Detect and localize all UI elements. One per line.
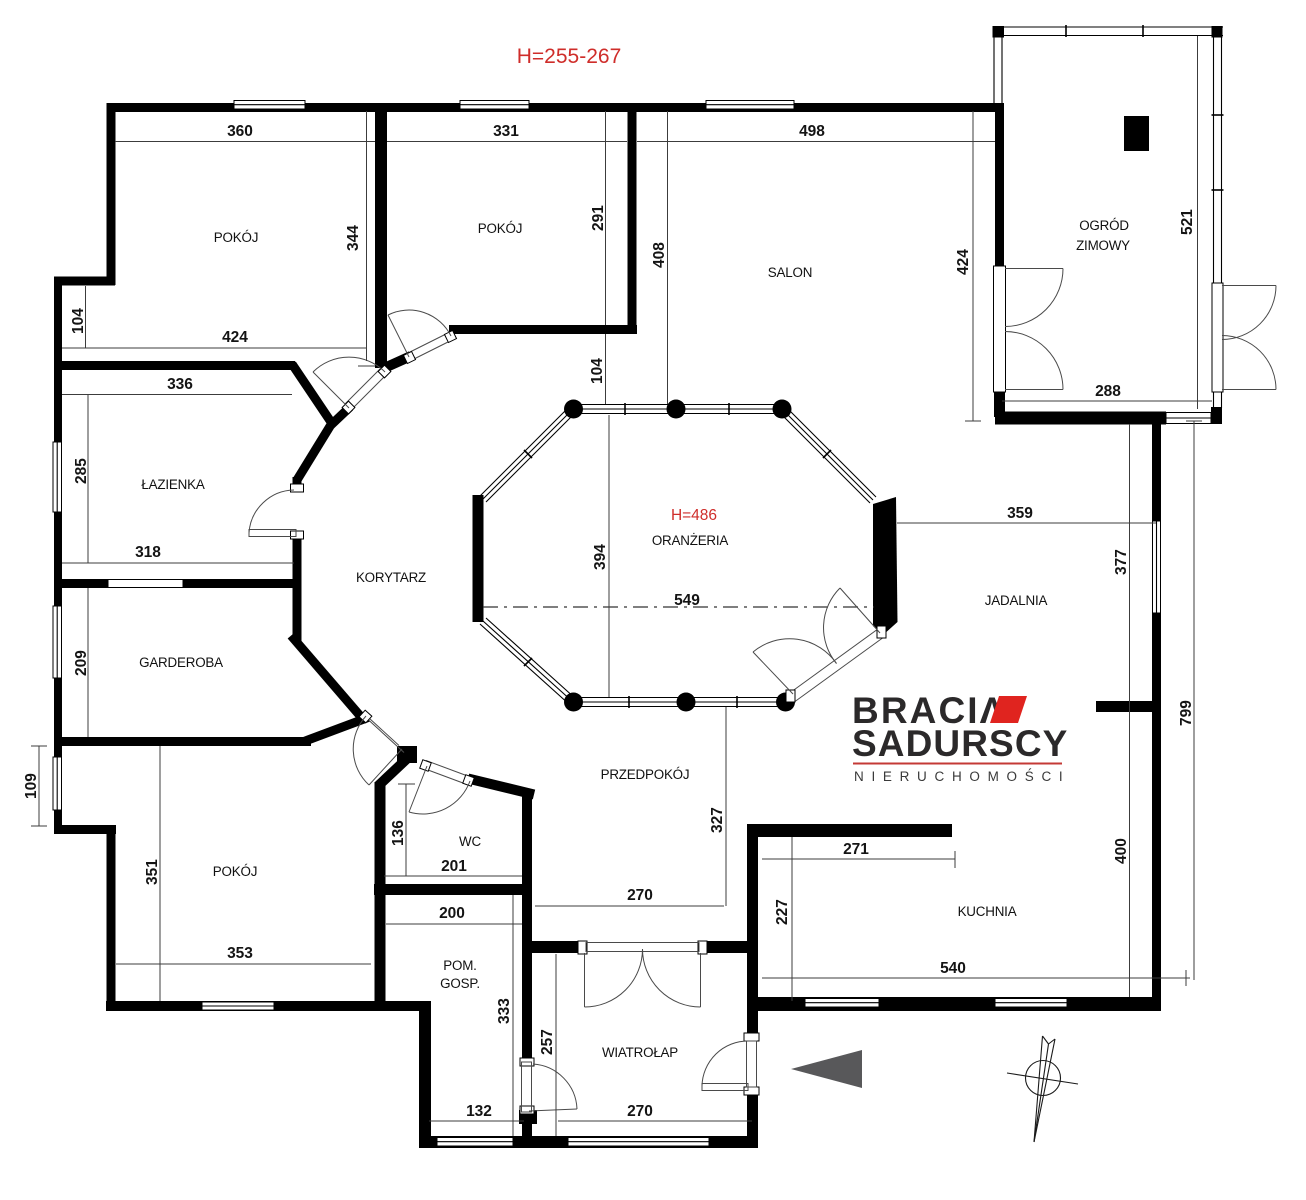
- svg-text:109: 109: [23, 773, 40, 799]
- svg-text:394: 394: [592, 544, 609, 570]
- svg-text:ORANŻERIA: ORANŻERIA: [652, 533, 729, 548]
- svg-text:377: 377: [1113, 549, 1130, 575]
- svg-text:351: 351: [144, 859, 161, 885]
- svg-text:336: 336: [167, 376, 193, 393]
- svg-text:285: 285: [73, 458, 90, 484]
- svg-text:424: 424: [955, 249, 972, 275]
- svg-text:498: 498: [799, 123, 825, 140]
- svg-text:331: 331: [493, 123, 519, 140]
- svg-text:KORYTARZ: KORYTARZ: [356, 570, 426, 585]
- svg-text:521: 521: [1179, 209, 1196, 235]
- svg-text:257: 257: [539, 1029, 556, 1055]
- svg-text:104: 104: [70, 308, 87, 334]
- svg-text:104: 104: [589, 358, 606, 384]
- svg-text:270: 270: [627, 1103, 653, 1120]
- svg-text:360: 360: [227, 123, 253, 140]
- svg-text:POKÓJ: POKÓJ: [478, 221, 522, 236]
- svg-text:353: 353: [227, 945, 253, 962]
- svg-text:227: 227: [774, 899, 791, 925]
- svg-text:270: 270: [627, 887, 653, 904]
- svg-text:SADURSCY: SADURSCY: [852, 723, 1068, 764]
- svg-text:271: 271: [843, 841, 869, 858]
- svg-text:H=255-267: H=255-267: [517, 45, 622, 68]
- svg-text:NIERUCHOMOŚCI: NIERUCHOMOŚCI: [854, 769, 1070, 784]
- svg-text:PRZEDPOKÓJ: PRZEDPOKÓJ: [601, 767, 690, 782]
- svg-text:SALON: SALON: [768, 265, 812, 280]
- svg-text:408: 408: [651, 242, 668, 268]
- svg-text:344: 344: [345, 225, 362, 251]
- svg-text:549: 549: [674, 592, 700, 609]
- svg-text:209: 209: [73, 650, 90, 676]
- svg-text:799: 799: [1178, 700, 1195, 726]
- svg-text:288: 288: [1095, 383, 1121, 400]
- svg-text:318: 318: [135, 544, 161, 561]
- svg-text:H=486: H=486: [671, 507, 717, 524]
- svg-text:333: 333: [496, 998, 513, 1024]
- svg-text:OGRÓD: OGRÓD: [1079, 218, 1129, 233]
- svg-text:POKÓJ: POKÓJ: [213, 864, 257, 879]
- svg-text:GARDEROBA: GARDEROBA: [139, 655, 223, 670]
- svg-text:359: 359: [1007, 505, 1033, 522]
- svg-text:540: 540: [940, 960, 966, 977]
- svg-text:424: 424: [222, 329, 248, 346]
- svg-text:WIATROŁAP: WIATROŁAP: [602, 1045, 678, 1060]
- svg-text:327: 327: [709, 807, 726, 833]
- svg-text:WC: WC: [459, 834, 481, 849]
- svg-text:GOSP.: GOSP.: [440, 976, 480, 991]
- svg-text:400: 400: [1113, 838, 1130, 864]
- svg-text:291: 291: [590, 205, 607, 231]
- svg-text:136: 136: [390, 820, 407, 846]
- svg-text:132: 132: [466, 1103, 492, 1120]
- svg-text:ŁAZIENKA: ŁAZIENKA: [141, 477, 204, 492]
- svg-text:POM.: POM.: [443, 958, 476, 973]
- svg-text:KUCHNIA: KUCHNIA: [958, 904, 1017, 919]
- svg-text:ZIMOWY: ZIMOWY: [1076, 238, 1130, 253]
- svg-text:200: 200: [439, 905, 465, 922]
- svg-text:JADALNIA: JADALNIA: [985, 593, 1048, 608]
- svg-text:201: 201: [441, 858, 467, 875]
- svg-text:POKÓJ: POKÓJ: [214, 230, 258, 245]
